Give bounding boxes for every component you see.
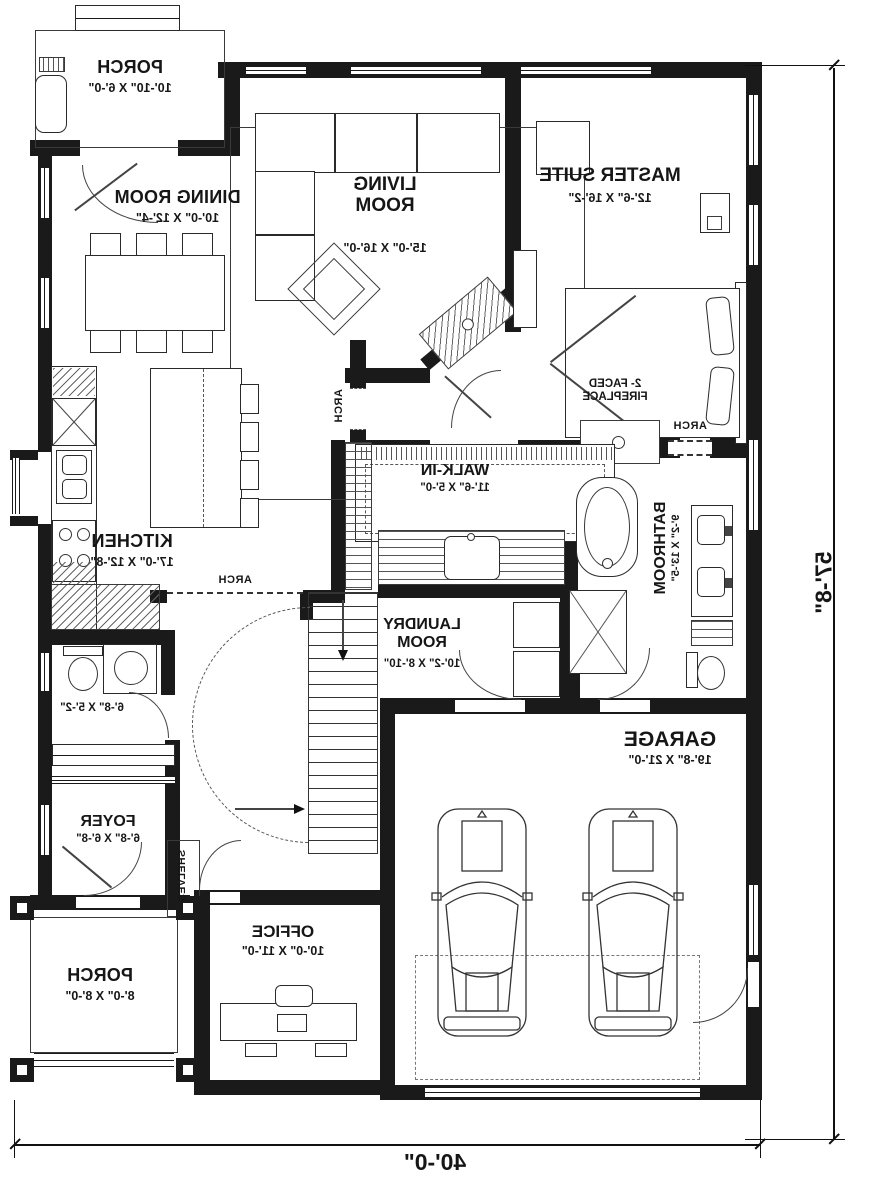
wall-powder-right xyxy=(161,645,175,695)
room-dims-garage: 19'-8" X 21'-0" xyxy=(590,754,750,768)
dim-depth-label: 57'-8" xyxy=(811,523,836,643)
porch-post xyxy=(10,896,34,920)
bay-window xyxy=(12,458,20,514)
room-dims-porch-bottom: 8'-0" X 8'-0" xyxy=(30,990,170,1004)
room-label-walkin: WALK-IN xyxy=(375,462,535,480)
garage-door xyxy=(425,1087,700,1098)
island-stool xyxy=(240,422,259,452)
dining-chair xyxy=(136,233,167,256)
laundry-sink xyxy=(444,536,500,580)
arch-opening xyxy=(668,440,712,456)
bathroom-name: BATHROOM xyxy=(652,488,670,608)
garage-side-door-opening xyxy=(748,962,759,1007)
washer xyxy=(513,602,560,648)
window xyxy=(521,66,651,75)
stairs-arrow-line xyxy=(342,600,344,652)
fridge-x xyxy=(52,398,96,446)
room-dims-powder: 6'-8" X 5'-2" xyxy=(27,702,157,715)
room-label-foyer: FOYER xyxy=(48,813,168,831)
front-door-arc xyxy=(84,842,142,896)
powder-sink xyxy=(114,651,148,685)
dining-table xyxy=(85,255,225,331)
powder-door-arc xyxy=(129,692,169,738)
wall-office-bottom xyxy=(195,1080,390,1095)
chimney xyxy=(75,5,180,31)
room-label-dining: DINING ROOM xyxy=(55,188,300,208)
fireplace-label: 2- FACED FIREPLACE xyxy=(555,378,675,403)
closet-door-track xyxy=(52,776,175,784)
arch-label-kitchen: ARCH xyxy=(205,574,265,586)
arch-opening xyxy=(167,592,303,596)
room-dims-living: 15'-0" X 16'-0" xyxy=(320,242,450,256)
dim-width-label: 40'-0" xyxy=(335,1150,535,1175)
office-door-arc xyxy=(199,840,241,890)
faucet xyxy=(725,526,732,536)
porch-post xyxy=(176,1058,200,1082)
stairs-upper-flight xyxy=(345,442,372,590)
room-label-kitchen: KITCHEN xyxy=(42,532,222,552)
window xyxy=(246,66,306,75)
room-dims-foyer: 6'-8" X 6'-8" xyxy=(48,833,168,846)
window xyxy=(748,440,759,530)
wall-powder-top xyxy=(40,630,175,645)
floor-plan: PORCH 10'-10" X 6'-0" DINING ROOM 10'-0"… xyxy=(0,0,871,1200)
dining-chair xyxy=(136,330,167,353)
window xyxy=(748,95,759,165)
counter-corner xyxy=(51,584,160,630)
island-stool xyxy=(240,460,259,490)
bay-opening xyxy=(38,452,52,524)
office-chair xyxy=(275,985,313,1007)
dim-ext xyxy=(760,1100,761,1158)
window xyxy=(351,66,481,75)
vanity-sink xyxy=(697,515,725,545)
room-label-laundry: LAUNDRY ROOM xyxy=(377,616,467,651)
bathroom-dims: 9'-2" X 13'-5" xyxy=(670,488,682,608)
powder-toilet-tank xyxy=(63,646,103,656)
bathroom-door-opening xyxy=(600,700,650,712)
arch-label-hall: ARCH xyxy=(333,375,345,437)
window xyxy=(748,205,759,265)
island-stool xyxy=(240,498,259,528)
garage-side-door-arc xyxy=(693,968,748,1023)
dim-ext xyxy=(14,1100,15,1158)
bathtub xyxy=(576,477,638,577)
room-label-master: MASTER SUITE xyxy=(495,166,725,187)
window xyxy=(40,278,50,328)
sofa-sectional xyxy=(255,113,500,173)
hall-arc-clip xyxy=(190,607,310,843)
toilet-bowl xyxy=(697,656,725,690)
bay-cap xyxy=(10,516,38,526)
laundry-garage-door-opening xyxy=(455,700,525,712)
dining-chair xyxy=(182,233,213,256)
room-label-garage: GARAGE xyxy=(590,728,750,751)
dining-chair xyxy=(182,330,213,353)
file-cabinet xyxy=(245,1043,277,1057)
kitchen-island xyxy=(150,368,242,528)
counter-hatch xyxy=(53,368,95,396)
island-stool xyxy=(240,384,259,414)
linen-shelves xyxy=(691,620,733,646)
wall-garage-top xyxy=(380,698,762,714)
room-dims-walkin: 11'-6" X 5'-0" xyxy=(375,482,535,495)
window xyxy=(40,168,50,218)
room-dims-office: 10'-0" X 11'-0" xyxy=(203,945,363,959)
car xyxy=(432,805,532,1040)
file-cabinet xyxy=(315,1043,347,1057)
vanity-sink xyxy=(697,567,725,597)
dining-chair xyxy=(90,330,121,353)
window xyxy=(748,885,759,955)
car xyxy=(583,805,683,1040)
room-dims-dining: 10'-0" X 12'-4" xyxy=(55,212,300,226)
room-dims-laundry: 10'-2" X 8'-10" xyxy=(339,658,505,671)
room-label-porch-bottom: PORCH xyxy=(30,966,170,986)
shelves-label: SHELVES xyxy=(177,841,189,911)
porch-steps xyxy=(34,1053,174,1067)
dim-line-width xyxy=(14,1144,760,1146)
kitchen-sink xyxy=(56,450,92,504)
arch-label-master: ARCH xyxy=(660,420,720,432)
room-dims-master: 12'-6" X 16'-2" xyxy=(495,192,725,206)
window xyxy=(40,653,50,691)
closet-rod xyxy=(358,447,612,460)
dresser xyxy=(513,250,537,328)
coat-closet-rod xyxy=(52,744,175,766)
room-label-bathroom: BATHROOM 9'-2" X 13'-5" xyxy=(652,488,692,608)
front-door-opening xyxy=(76,897,140,908)
room-dims-kitchen: 17'-0" X 12'-8" xyxy=(42,556,222,570)
powder-toilet-bowl xyxy=(68,657,98,691)
wall-right xyxy=(38,140,52,910)
room-dims-porch-top: 10'-10" X 6'-0" xyxy=(35,82,225,96)
floor-plan-screenshot: PORCH 10'-10" X 6'-0" DINING ROOM 10'-0"… xyxy=(0,0,871,1200)
room-label-office: OFFICE xyxy=(203,923,363,942)
room-label-living: LIVING ROOM xyxy=(330,175,440,217)
wall-laundry-top xyxy=(378,585,565,598)
dining-chair xyxy=(90,233,121,256)
office-monitor xyxy=(277,1014,307,1032)
bathroom-door-arc xyxy=(598,648,650,700)
room-label-porch-top: PORCH xyxy=(35,58,225,78)
porch-post xyxy=(10,1058,34,1082)
faucet xyxy=(725,578,732,588)
